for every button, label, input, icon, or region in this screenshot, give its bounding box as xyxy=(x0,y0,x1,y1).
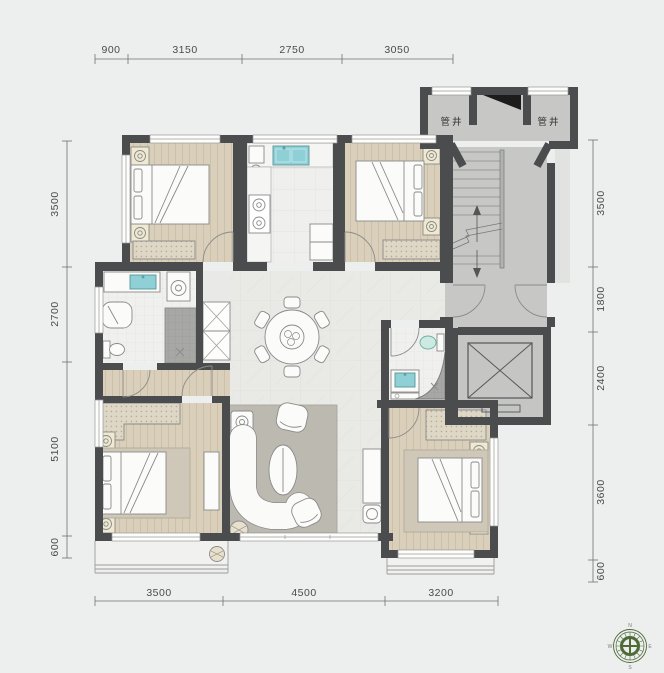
nightstand xyxy=(423,147,440,164)
bed xyxy=(131,165,209,224)
toilet-bowl xyxy=(110,344,125,356)
compass-east: E xyxy=(648,644,652,650)
stair-rail xyxy=(500,150,504,268)
toilet xyxy=(103,341,110,358)
dim-label: 4500 xyxy=(291,587,316,599)
compass-icon: N E S W xyxy=(608,623,653,671)
dim-label: 2750 xyxy=(279,44,304,56)
dim-label: 3200 xyxy=(428,587,453,599)
toilet-tank xyxy=(437,334,444,351)
neighbor-floor xyxy=(555,147,570,283)
dim-label: 900 xyxy=(101,44,120,56)
dim-label: 3150 xyxy=(172,44,197,56)
nightstand xyxy=(131,147,149,165)
dim-label: 2700 xyxy=(49,301,61,326)
compass-south: S xyxy=(628,665,632,671)
dim-label: 3600 xyxy=(595,479,607,504)
bench xyxy=(133,241,195,259)
dim-label: 2400 xyxy=(595,365,607,390)
nightstand xyxy=(131,224,149,242)
stairwell-floor xyxy=(445,147,547,330)
toilet-bowl xyxy=(420,336,436,349)
compass-north: N xyxy=(628,623,632,629)
floor-plan-page: 管井 管井 900 3150 2750 305 xyxy=(0,0,664,673)
pipe-shaft-left-label: 管井 xyxy=(440,116,463,128)
cabinet xyxy=(249,146,264,163)
tv-console xyxy=(363,449,381,503)
dim-label: 1800 xyxy=(595,286,607,311)
window xyxy=(398,550,474,558)
window xyxy=(150,135,220,143)
window xyxy=(95,287,103,333)
dim-label: 3500 xyxy=(146,587,171,599)
window xyxy=(432,87,471,95)
nightstand xyxy=(423,218,440,235)
window xyxy=(122,155,130,243)
dim-label: 600 xyxy=(595,561,607,580)
floor-plan-drawing: 管井 管井 900 3150 2750 305 xyxy=(0,0,664,673)
decor-table xyxy=(363,505,381,523)
dim-left xyxy=(62,141,72,558)
dim-label: 3500 xyxy=(49,191,61,216)
shower xyxy=(165,308,196,363)
dim-label: 3050 xyxy=(384,44,409,56)
dim-label: 5100 xyxy=(49,436,61,461)
dim-label: 600 xyxy=(49,537,61,556)
window xyxy=(95,400,103,447)
window xyxy=(112,533,200,541)
bench xyxy=(383,240,440,259)
washer xyxy=(167,272,190,301)
window xyxy=(253,135,337,143)
corridor-floor xyxy=(103,370,230,396)
dining-table xyxy=(265,310,319,364)
window xyxy=(352,135,436,143)
window xyxy=(240,533,378,541)
dim-label: 3500 xyxy=(595,190,607,215)
window xyxy=(528,87,568,95)
window xyxy=(490,438,498,526)
pipe-shaft-right-label: 管井 xyxy=(537,116,560,128)
stove xyxy=(249,195,270,233)
tub xyxy=(102,302,132,328)
compass-west: W xyxy=(608,644,613,650)
dresser xyxy=(204,452,219,510)
